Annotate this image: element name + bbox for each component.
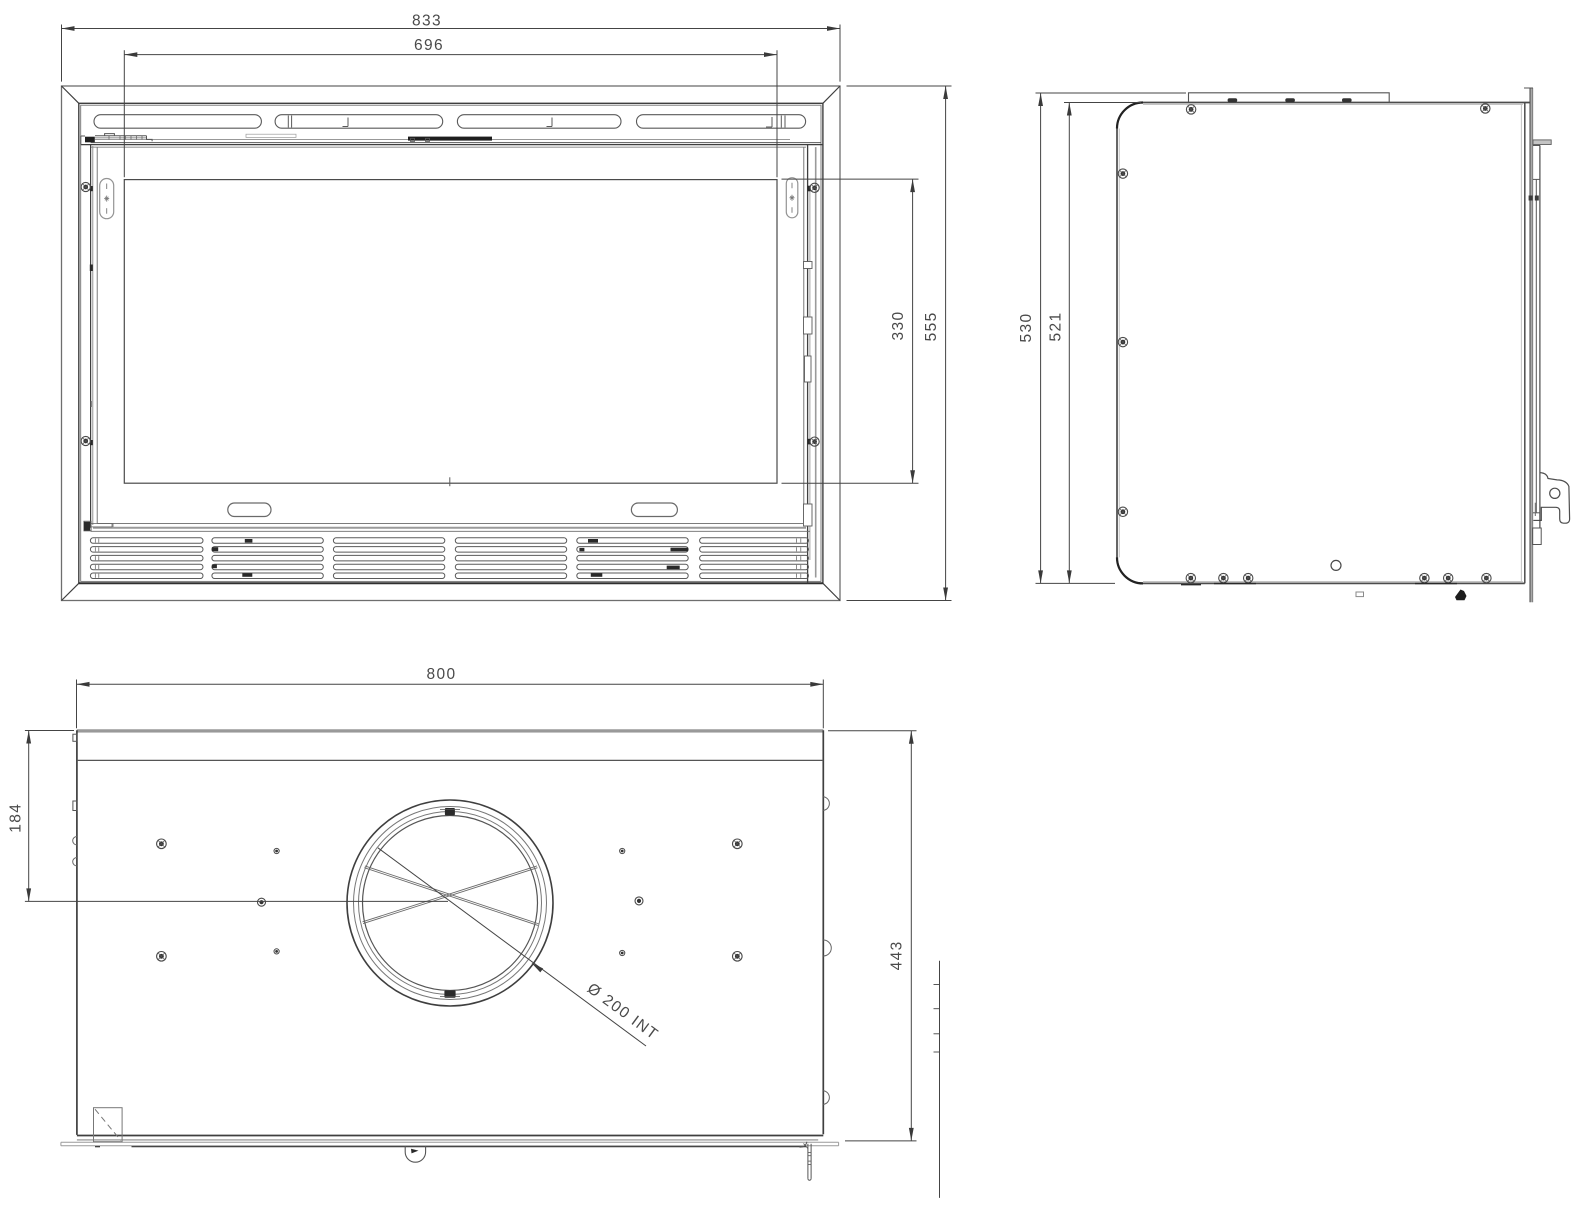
svg-text:521: 521	[1048, 311, 1065, 341]
svg-text:800: 800	[426, 666, 456, 683]
svg-text:555: 555	[923, 311, 940, 341]
svg-text:833: 833	[412, 13, 442, 30]
svg-text:443: 443	[889, 940, 906, 970]
svg-text:184: 184	[7, 803, 24, 833]
svg-text:330: 330	[890, 310, 907, 340]
svg-text:696: 696	[414, 37, 444, 54]
svg-text:530: 530	[1018, 312, 1035, 342]
